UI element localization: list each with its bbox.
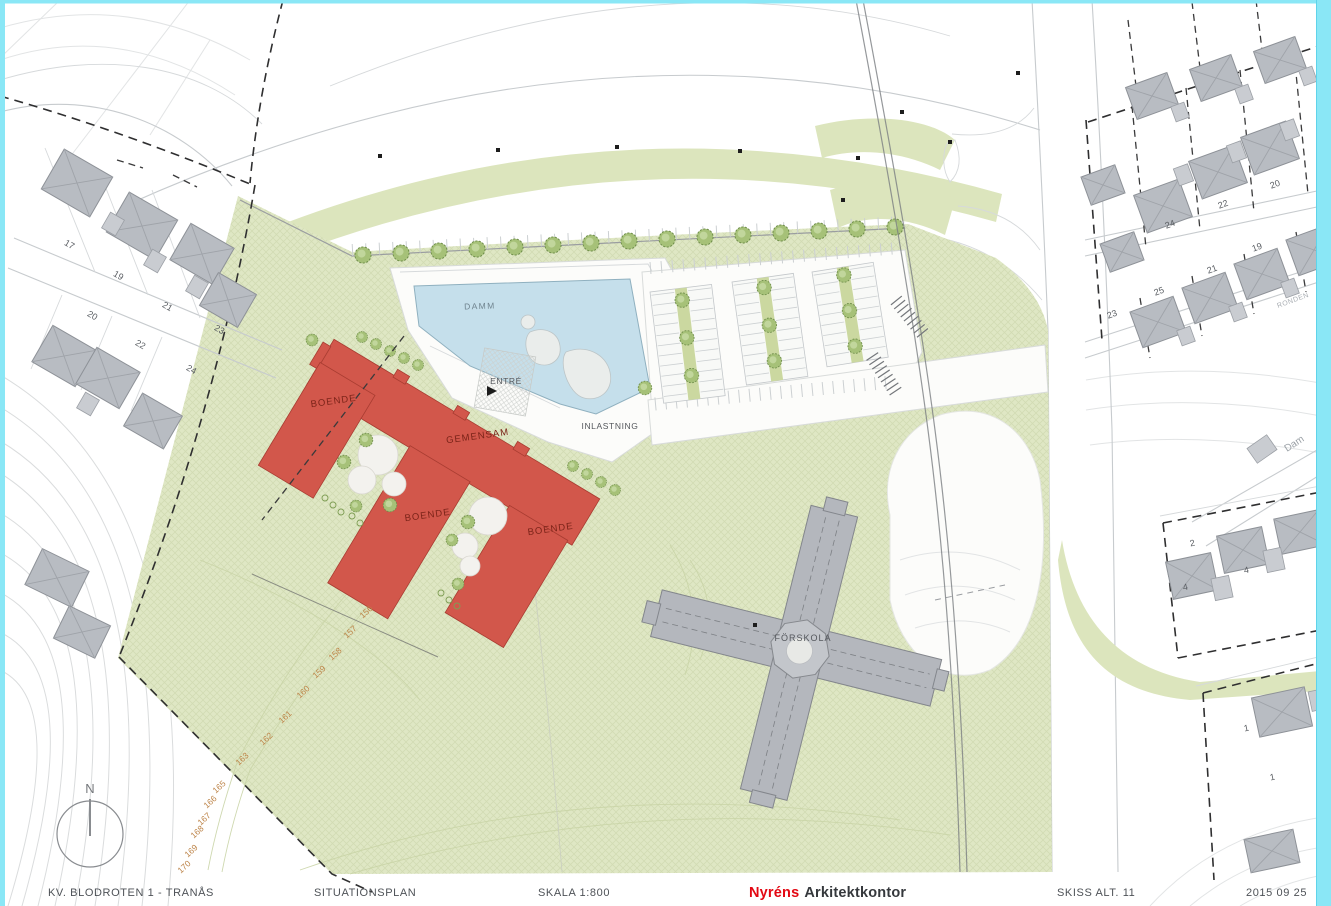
sketch-alt: SKISS ALT. 11 [1057,887,1135,899]
drawing-type: SITUATIONSPLAN [314,887,416,899]
label-forskola: FÖRSKOLA [774,633,831,643]
firm-name-red: Nyréns [749,885,799,901]
project-title: KV. BLODROTEN 1 - TRANÅS [48,886,214,899]
label-damm: DAMM [464,300,496,311]
label-entre: ENTRÉ [490,376,522,386]
preschool-grounds [887,411,1043,675]
firm-logo: NyrénsArkitektkontor [749,885,906,901]
site-plan-page: DAMM [0,0,1331,906]
label-inlastning: INLASTNING [581,421,638,431]
drawing-date: 2015 09 25 [1246,887,1307,899]
firm-name-black: Arkitektkontor [804,885,906,901]
drawing-scale: SKALA 1:800 [538,887,610,899]
site-plan-drawing: DAMM [0,0,1331,906]
north-label: N [85,781,94,796]
parking-module [650,284,725,403]
